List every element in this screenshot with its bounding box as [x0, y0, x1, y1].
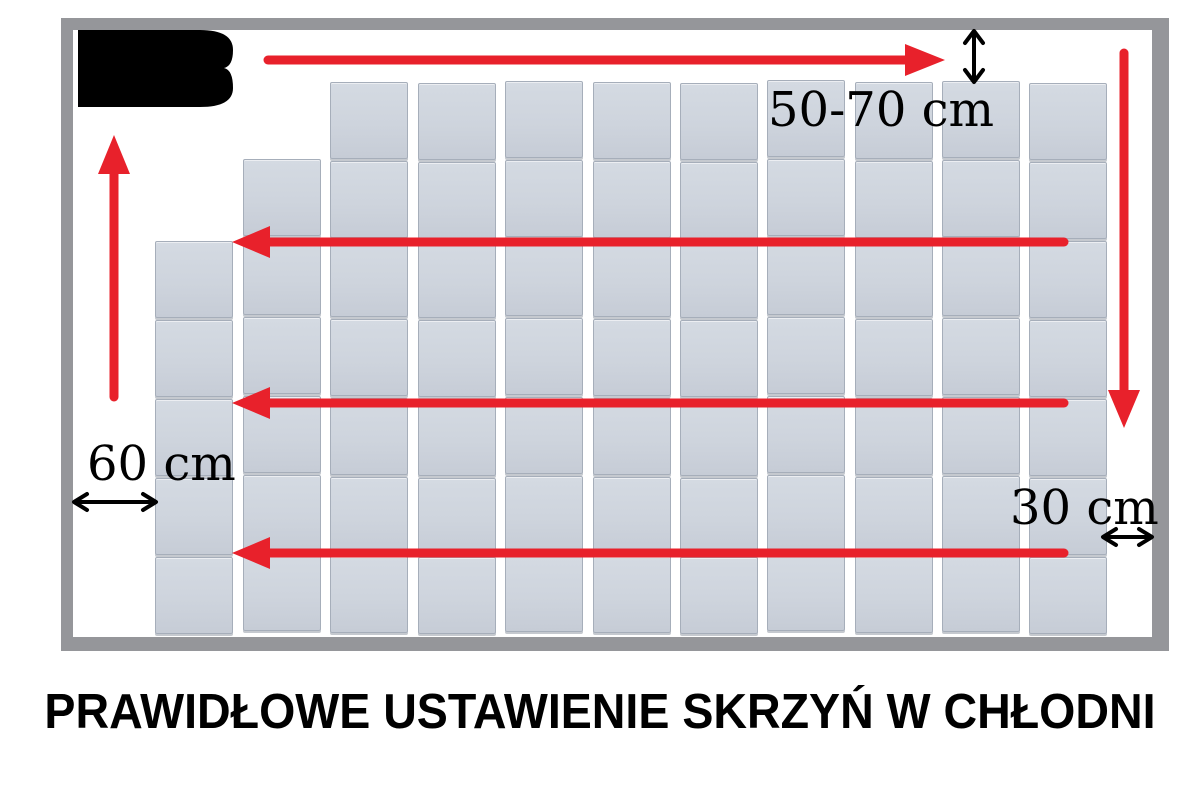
- airflow-arrow-row-1-icon: [232, 226, 1064, 258]
- left-gap-label: 60 cm: [87, 440, 236, 488]
- diagram-canvas: 50-70 cm 60 cm 30 cm PRAWIDŁOWE USTAWIEN…: [0, 0, 1200, 800]
- airflow-arrow-row-3-icon: [232, 537, 1064, 569]
- airflow-arrow-left-up-icon: [98, 135, 130, 397]
- airflow-arrow-row-2-icon: [232, 387, 1064, 419]
- measure-arrow-left-gap-icon: [74, 494, 156, 510]
- measure-arrow-top-gap-icon: [965, 31, 983, 82]
- diagram-overlay: [0, 0, 1200, 660]
- top-gap-label: 50-70 cm: [768, 86, 994, 134]
- airflow-arrow-right-down-icon: [1108, 53, 1140, 428]
- cooling-unit-icon: [78, 30, 233, 107]
- airflow-arrow-top-icon: [268, 44, 945, 76]
- right-gap-label: 30 cm: [1010, 484, 1159, 532]
- caption-title: PRAWIDŁOWE USTAWIENIE SKRZYŃ W CHŁODNI: [30, 684, 1170, 740]
